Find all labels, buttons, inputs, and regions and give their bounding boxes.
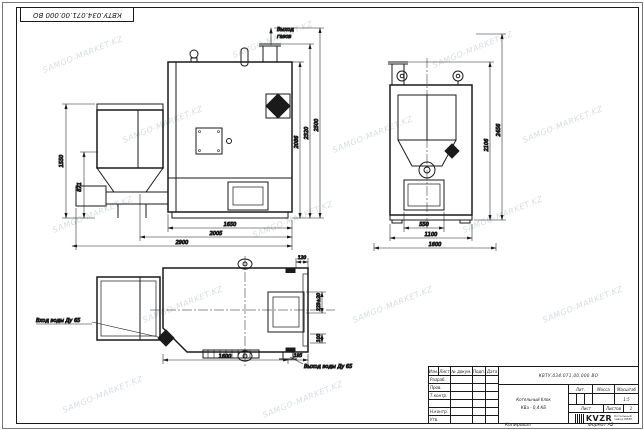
tb-cell [486,376,499,384]
tb-col-izm: Изм. [429,367,439,376]
door-plan [268,292,304,332]
side-dims-right [408,34,506,220]
water-outlet-label: Выход воды Ду 65 [304,364,352,370]
title-block: Изм. Лист № докум. Подп. Дата Разраб. Пр… [428,366,638,423]
side-view: 2106 2456 550 1100 1600 [374,34,506,251]
tb-cell [451,384,473,392]
dim-text: 1100 [425,232,438,238]
dim-text: 195 [294,353,303,359]
tb-list-label: Лист [569,405,604,413]
tb-lit-cell [577,394,585,405]
product-name-line1: Котельный блок [516,396,551,404]
tb-listov-label: Листов [604,405,624,413]
tb-row-nkontr: Н.контр. [429,408,451,416]
tb-cell [486,408,499,416]
tb-cell [451,392,473,400]
tb-col-list: Лист [439,367,451,376]
copied-label: Копировал [505,423,531,428]
furnace-door [404,180,444,210]
tb-cell [473,384,486,392]
tb-row-utv: Утв. [429,416,451,424]
tb-cell [451,416,473,424]
tb-lit-header: Лит. [569,385,593,394]
dim-text: 2320 [304,127,310,140]
logo-subtext: Котельный завод КВЗР [614,415,632,422]
thermowell [241,48,248,66]
lifting-lug [397,71,407,81]
tb-cell [486,416,499,424]
tb-cell [473,392,486,400]
tb-product-name: Котельный блок КВа - 0,4 КБ [499,385,569,424]
dim-text: 1600 [219,354,232,360]
tb-row-razrab: Разраб. [429,376,451,384]
tb-masshtab-header: Масштаб [615,385,639,394]
tb-massa-header: Масса [593,385,615,394]
gas-outlet-label: газов [277,34,291,40]
tb-col-podp: Подп. [473,367,486,376]
tb-cell [451,376,473,384]
dim-text: 2005 [210,231,223,237]
barcode-icon [575,414,584,423]
dim-text: 2086 [294,136,300,149]
front-dims-left [62,104,98,218]
tb-doc-number: КВТУ.034.071.00.000 ВО [499,367,639,385]
dim-text: 100 [316,334,322,343]
safety-valve [190,50,198,58]
tb-row-prov: Пров. [429,384,451,392]
dim-text: 2106 [484,139,490,152]
dim-text: 2456 [496,124,502,137]
tb-cell [473,376,486,384]
logo-subtext-line2: завод КВЗР [614,418,632,422]
tb-row-blank [429,400,451,408]
tb-cell [486,400,499,408]
dim-text: 2900 [176,240,189,246]
dim-text: 223±20 [316,293,322,311]
tb-cell [473,400,486,408]
dim-text: 120 [298,255,307,261]
flue-damper-diamond [266,94,290,118]
drawing-sheet: SAMGO-MARKET.KZ SAMGO-MARKET.KZ SAMGO-MA… [0,0,644,430]
dim-text: 871 [77,182,83,192]
tb-cell [486,384,499,392]
tb-row-tkontr: Т.контр. [429,392,451,400]
tb-col-dokum: № докум. [451,367,473,376]
tb-cell [451,400,473,408]
tb-col-data: Дата [486,367,499,376]
dim-text: 2500 [314,119,320,132]
dim-text: 1650 [224,222,237,228]
tb-cell [473,408,486,416]
dim-text: 550 [419,222,429,228]
tb-cell [486,392,499,400]
plan-dims [163,258,326,364]
lifting-lug [453,71,463,81]
water-inlet-label: Вход воды Ду 65 [36,318,80,324]
tb-scale-value: 1:5 [615,394,639,405]
tb-cell [473,416,486,424]
plan-view: Вход воды Ду 65 Выход воды Ду 65 [36,255,352,370]
product-name-line2: КВа - 0,4 КБ [521,404,546,412]
dim-text: 1550 [59,155,65,168]
format-label: Формат А2 [588,423,614,428]
tb-lit-cell [585,394,593,405]
chimney-stub [263,46,277,62]
front-view: Выход газов 1550 871 [59,27,324,250]
dim-text: 1600 [429,242,442,248]
kvzr-logo: KVZR [586,414,612,423]
tb-massa-cell [593,394,615,405]
tb-cell [451,408,473,416]
tb-listov-value: 1 [624,405,639,413]
tb-lit-cell [569,394,577,405]
